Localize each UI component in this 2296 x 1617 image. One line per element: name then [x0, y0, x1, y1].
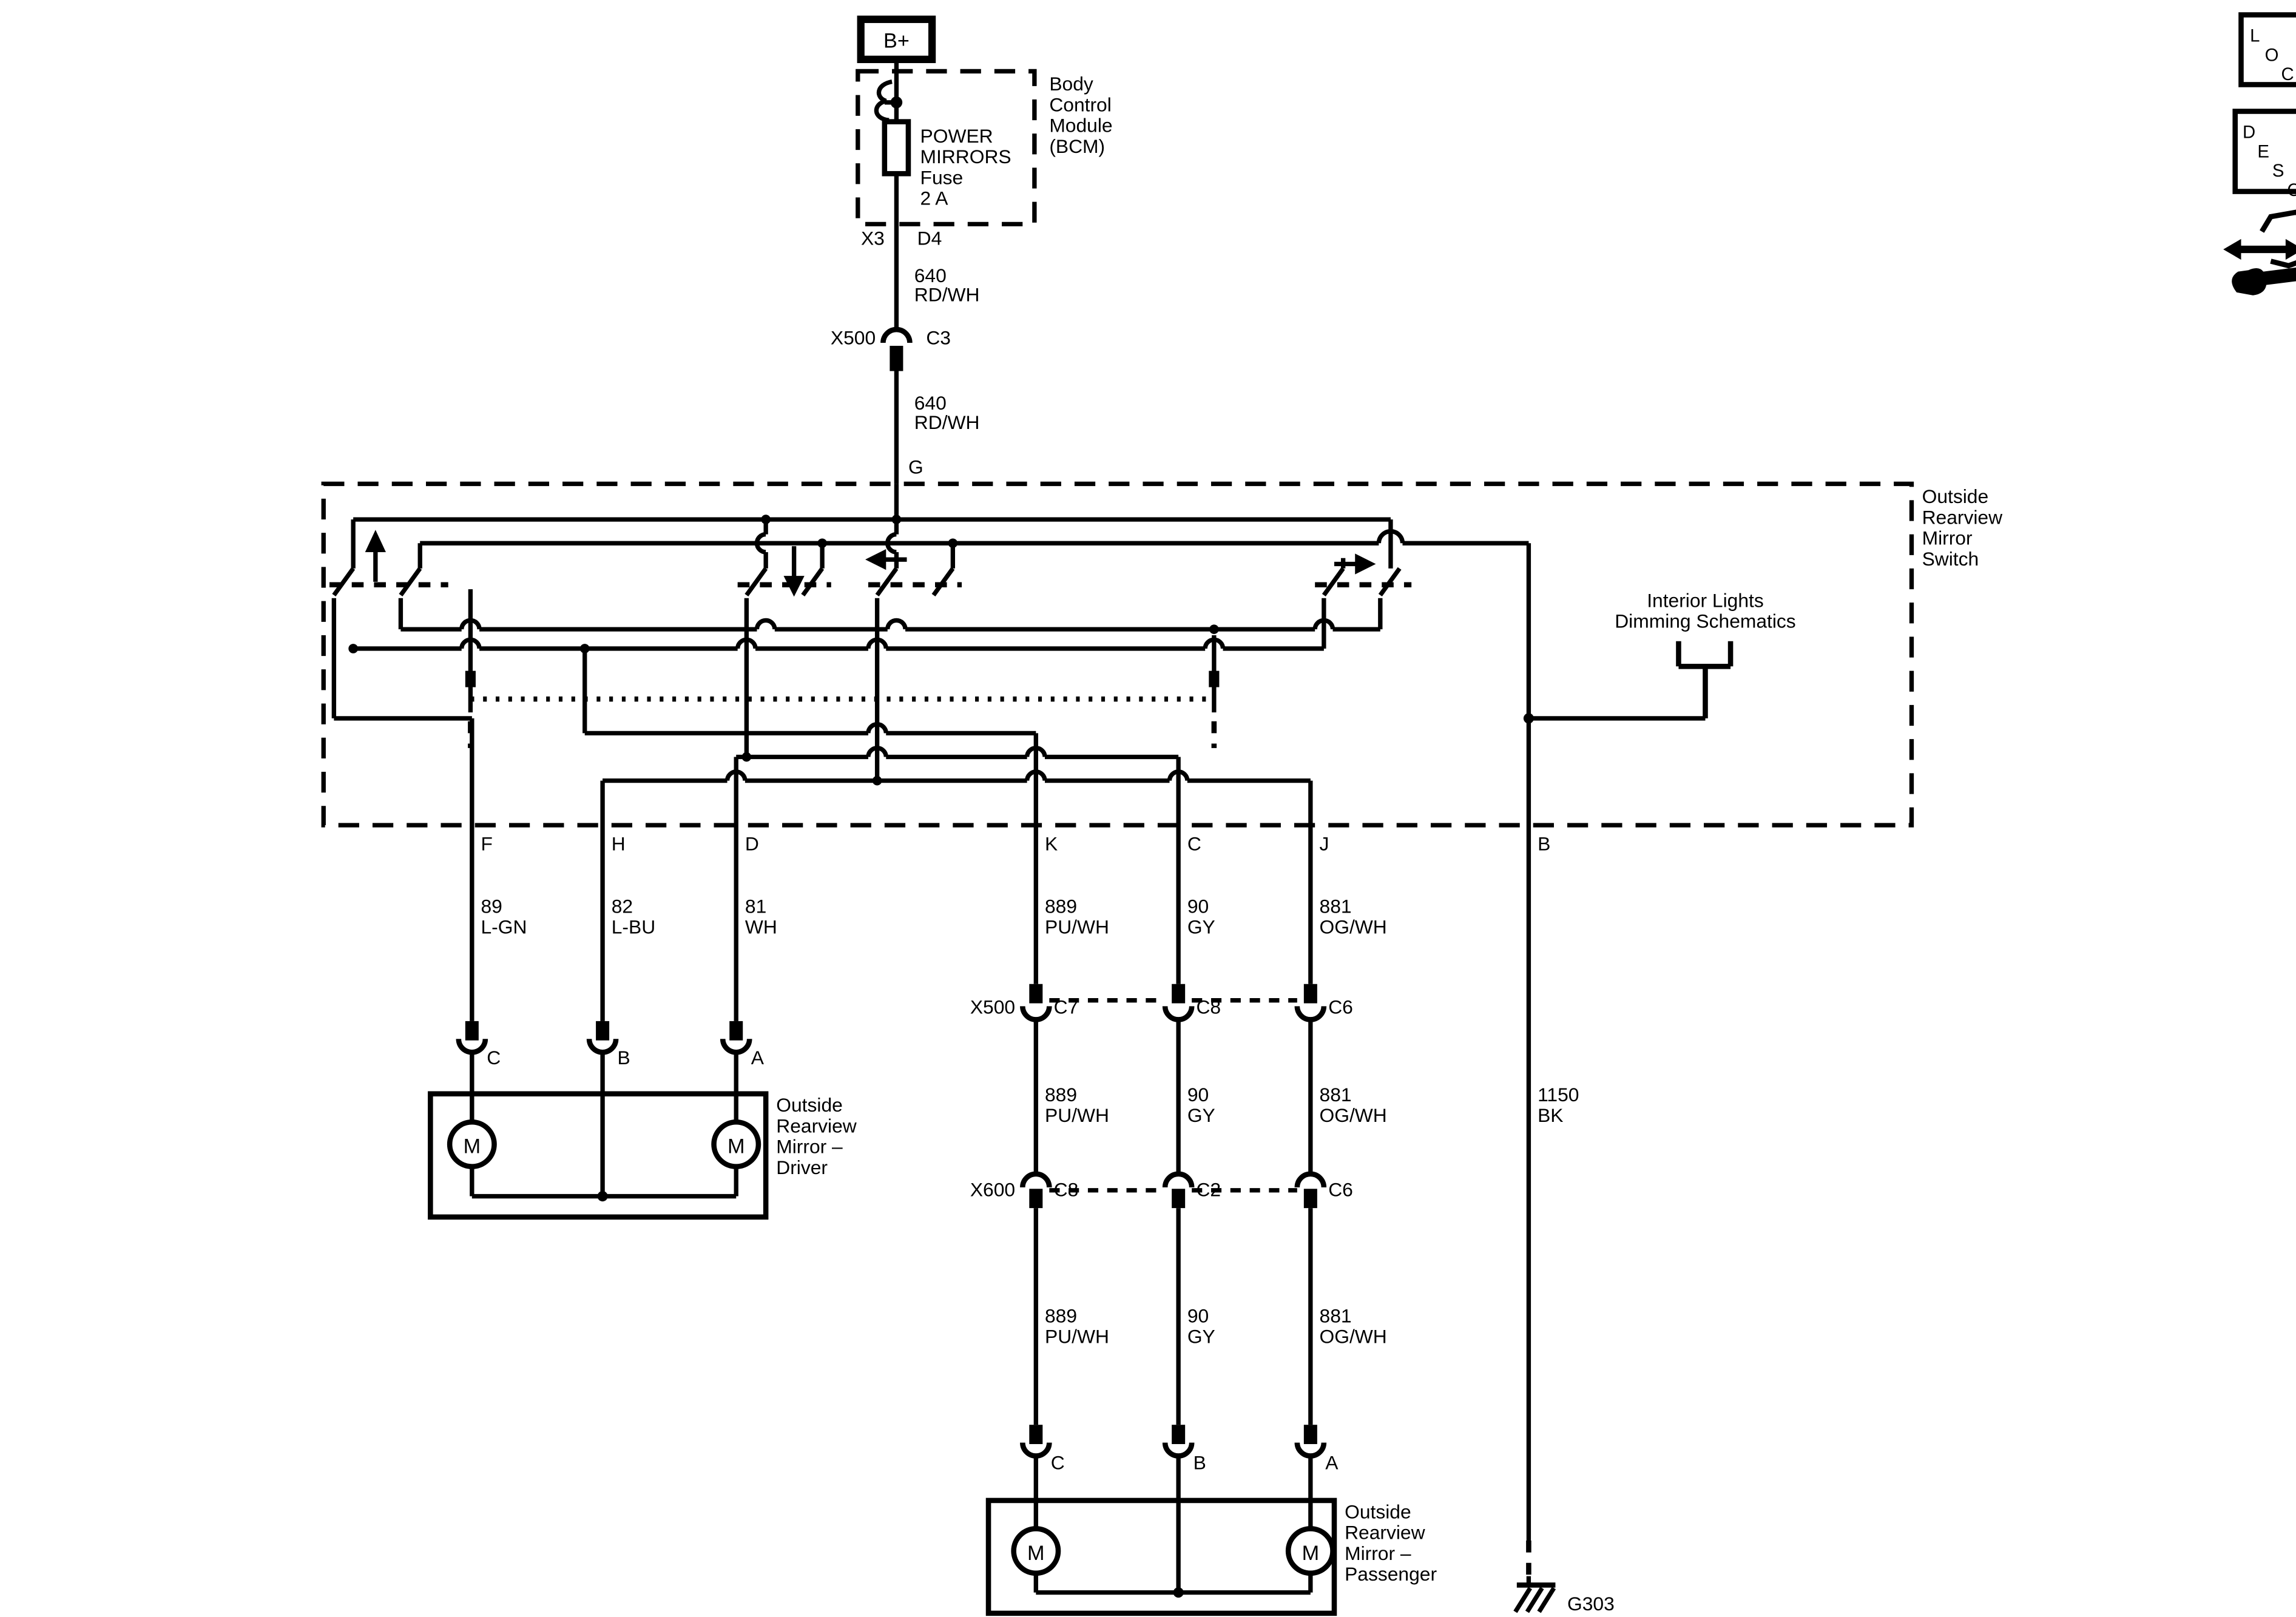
wire-color: OG/WH — [1320, 1326, 1387, 1348]
circuit-number: 90 — [1187, 1305, 1209, 1326]
loc-letter: O — [2265, 45, 2279, 65]
switch-box-label: Outside — [1922, 485, 1989, 507]
fuse-label: MIRRORS — [920, 146, 1011, 167]
feed-wire: 640 RD/WH X500 C3 640 RD/WH G — [831, 265, 980, 484]
circuit-number: 82 — [612, 895, 633, 917]
connector-pin: C7 — [1054, 996, 1079, 1018]
mirror-switch-box: Outside Rearview Mirror Switch — [323, 484, 2003, 825]
wire-color: GY — [1187, 1104, 1215, 1126]
switch-pin-letters: F H D K C J B — [481, 833, 1551, 855]
mirror-pin: C — [1051, 1452, 1065, 1474]
switch-output-buses — [334, 598, 1380, 718]
switch-box-label: Mirror — [1922, 527, 1973, 549]
circuit-number: 640 — [914, 392, 947, 414]
wire-color: RD/WH — [914, 284, 980, 306]
interior-lights-label: Dimming Schematics — [1615, 610, 1795, 632]
wire-color: GY — [1187, 916, 1215, 938]
wire-color: PU/WH — [1045, 916, 1109, 938]
desc-letter: E — [2257, 141, 2269, 161]
mirror-up-switch — [329, 519, 448, 595]
driver-mirror-label: Outside — [776, 1094, 843, 1116]
driver-columns: 89 L-GN 82 L-BU 81 WH C B A — [459, 825, 777, 1094]
circuit-number: 90 — [1187, 895, 1209, 917]
mirror-pin: B — [1194, 1452, 1206, 1474]
passenger-mirror-label: Mirror – — [1345, 1542, 1411, 1564]
loc-letter: C — [2281, 64, 2294, 84]
ground-label: G303 — [1567, 1593, 1615, 1615]
circuit-number: 889 — [1045, 1305, 1077, 1326]
fuse-label: Fuse — [920, 166, 964, 188]
fuse-symbol — [885, 122, 908, 174]
loc-button[interactable]: L O C — [2241, 15, 2296, 84]
circuit-number: 640 — [914, 265, 947, 286]
motor-label: M — [464, 1135, 481, 1158]
wire-color: PU/WH — [1045, 1104, 1109, 1126]
wire-color: GY — [1187, 1326, 1215, 1348]
passenger-mirror-assembly: M M Outside Rearview Mirror – Passenger — [988, 1501, 1437, 1613]
mirror-left-switch — [865, 519, 962, 595]
mirror-pin: A — [751, 1047, 765, 1068]
collector-staircase — [334, 598, 1310, 825]
connector-stub-icon — [890, 346, 903, 371]
circuit-number: 89 — [481, 895, 502, 917]
circuit-number: 1150 — [1538, 1084, 1579, 1106]
connector-pin: C8 — [1196, 996, 1221, 1018]
bcm-connector-id: X3 — [861, 228, 885, 249]
interior-lights-label: Interior Lights — [1647, 589, 1764, 611]
circuit-number: 90 — [1187, 1084, 1209, 1106]
x600-connector-row: X600 C8 C2 C6 — [970, 1174, 1353, 1425]
passenger-mirror-connectors: C B A — [1022, 1425, 1339, 1501]
motor-label: M — [1302, 1542, 1320, 1565]
desc-letter: S — [2272, 161, 2284, 181]
circuit-number: 889 — [1045, 1084, 1077, 1106]
battery-label: B+ — [883, 29, 910, 52]
pin-letter-h: H — [612, 833, 626, 855]
mechanical-linkage — [465, 589, 1220, 748]
pin-letter-c: C — [1187, 833, 1201, 855]
wire-color: L-GN — [481, 916, 527, 938]
motor-label: M — [1027, 1542, 1045, 1565]
mirror-pin: A — [1325, 1452, 1339, 1474]
wire-color: L-BU — [612, 916, 655, 938]
driver-mirror-connectors: C B A — [459, 1021, 765, 1094]
power-mirrors-schematic: B+ POWER MIRRORS Fuse 2 A Body Control M… — [0, 0, 2296, 1617]
driver-mirror-label: Mirror – — [776, 1136, 843, 1158]
fuse-label: POWER — [920, 125, 993, 147]
ground-symbol-icon — [1515, 1585, 1555, 1612]
pin-letter-k: K — [1045, 833, 1058, 855]
fuse-label: 2 A — [920, 187, 949, 209]
pin-letter-d: D — [745, 833, 759, 855]
circuit-number: 881 — [1320, 1305, 1352, 1326]
connector-pin: C6 — [1328, 996, 1353, 1018]
motor-label: M — [728, 1135, 745, 1158]
connector-pin: C2 — [1196, 1179, 1221, 1201]
connector-name: X500 — [970, 996, 1015, 1018]
interior-lights-reference: Interior Lights Dimming Schematics — [1524, 589, 1796, 723]
wire-color: OG/WH — [1320, 1104, 1387, 1126]
ground-path: 1150 BK G303 — [1515, 825, 1614, 1615]
corner-widgets: L O C D E S C — [2223, 15, 2296, 295]
x500-connector-row: X500 C7 C8 C6 — [970, 984, 1353, 1173]
connector-pin: C8 — [1054, 1179, 1079, 1201]
connector-pin: C6 — [1328, 1179, 1353, 1201]
wire-color: OG/WH — [1320, 916, 1387, 938]
circuit-number: 889 — [1045, 895, 1077, 917]
passenger-columns: 889 PU/WH 90 GY 881 OG/WH X500 C7 C8 C6 … — [970, 825, 1387, 1501]
bcm-label: (BCM) — [1049, 135, 1105, 157]
pin-letter-j: J — [1320, 833, 1329, 855]
circuit-number: 881 — [1320, 895, 1352, 917]
bcm-label: Body — [1049, 73, 1093, 95]
wiring-diagram-page: B+ POWER MIRRORS Fuse 2 A Body Control M… — [0, 0, 2296, 1617]
bcm-label: Module — [1049, 115, 1112, 137]
mirror-pin: B — [618, 1047, 630, 1068]
circuit-number: 81 — [745, 895, 766, 917]
connector-name: X500 — [831, 327, 876, 349]
bcm-pin-id: D4 — [917, 228, 942, 249]
switch-pin-g: G — [908, 456, 923, 478]
passenger-mirror-label: Rearview — [1345, 1522, 1426, 1544]
desc-button[interactable]: D E S C — [2235, 111, 2296, 200]
junction-dot — [891, 96, 903, 109]
wire-color: RD/WH — [914, 411, 980, 433]
repair-instructions-button[interactable] — [2223, 212, 2296, 295]
mirror-pin: C — [487, 1047, 501, 1068]
desc-letter: D — [2243, 123, 2255, 143]
switch-box-outline — [323, 484, 1911, 825]
mirror-down-switch — [738, 519, 831, 596]
wrench-arrow-icon — [2223, 212, 2296, 295]
connector-arc-icon — [883, 329, 910, 343]
right-arrow-icon — [1355, 553, 1376, 574]
wire-color: BK — [1538, 1104, 1563, 1126]
connector-pin: C3 — [926, 327, 951, 349]
loc-letter: L — [2250, 26, 2260, 46]
left-arrow-icon — [865, 549, 886, 570]
bcm-label: Control — [1049, 93, 1111, 115]
connector-name: X600 — [970, 1179, 1015, 1201]
wire-color: WH — [745, 916, 777, 938]
pin-letter-b: B — [1538, 833, 1550, 855]
passenger-mirror-label: Passenger — [1345, 1563, 1437, 1585]
driver-mirror-label: Driver — [776, 1156, 828, 1178]
driver-mirror-label: Rearview — [776, 1115, 857, 1136]
desc-letter: C — [2287, 180, 2296, 200]
switch-box-label: Switch — [1922, 548, 1979, 570]
passenger-mirror-label: Outside — [1345, 1501, 1411, 1522]
switch-box-label: Rearview — [1922, 506, 2004, 528]
driver-mirror-assembly: M M Outside Rearview Mirror – Driver — [430, 1094, 857, 1217]
schematic-continues-bracket-icon — [1678, 641, 1730, 718]
wire-color: PU/WH — [1045, 1326, 1109, 1348]
circuit-number: 881 — [1320, 1084, 1352, 1106]
up-arrow-icon — [365, 530, 386, 552]
pin-letter-f: F — [481, 833, 493, 855]
